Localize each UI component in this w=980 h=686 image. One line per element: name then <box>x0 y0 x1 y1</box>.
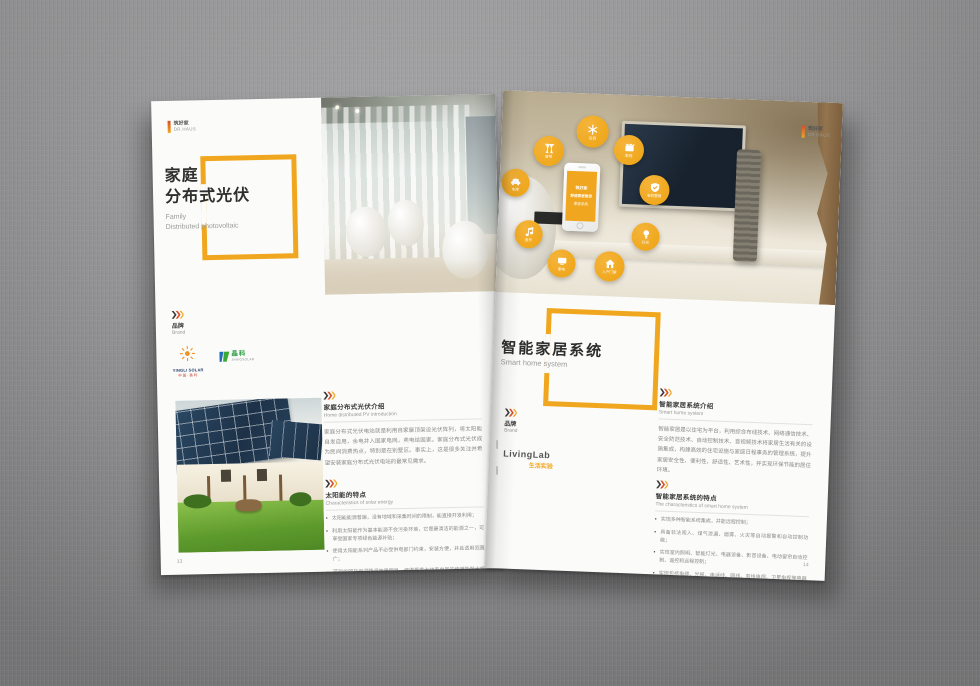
chevrons-icon <box>656 480 668 488</box>
garden-table <box>235 499 261 512</box>
tower-speaker <box>733 149 761 262</box>
title-line2: 分布式光伏 <box>165 187 250 206</box>
snowflake-glyph-icon <box>587 123 599 135</box>
icon-label: 安防警报 <box>647 194 662 198</box>
logo-bar-icon <box>802 126 805 138</box>
page-left: 筑好家 DR.HAUS 家庭 分布式光伏 Fami <box>151 94 505 575</box>
bullet-item: 太阳能能源普遍，没有地域和采集时间的限制，能直接开发利用； <box>326 512 484 523</box>
wall-panel <box>466 116 498 235</box>
headline-zh: 智能家居系统 <box>501 336 604 361</box>
phone-app-line1: 舒适家居智控 <box>570 193 592 199</box>
music-note-glyph-icon <box>523 226 534 237</box>
chevrons-icon <box>325 479 337 487</box>
chevrons-icon <box>172 311 184 319</box>
car-glyph-icon <box>510 174 522 186</box>
phone-app-line2: 家居系统 <box>574 201 589 207</box>
title-en-line1: Family <box>165 214 186 221</box>
livinglab-name: LivingLab <box>503 448 550 460</box>
brand-logos: YINGLI SOLAR 中国·英利 晶科 JINKOSOLAR <box>172 343 323 379</box>
floor <box>325 259 500 295</box>
chevrons-icon <box>323 391 335 399</box>
icon-label: 影视 <box>625 154 632 158</box>
brand-logo: 筑好家 DR.HAUS <box>168 120 197 133</box>
house-glyph-icon <box>604 258 615 269</box>
bullet-item: 实现室内照明、智能灯光、电器设备、影音设备、电动窗帘自动控制、遥控和远程控制； <box>653 550 807 571</box>
section-body: 智能家居是以住宅为平台，利用综合布线技术、网络通信技术、安全防范技术、自动控制技… <box>657 424 813 481</box>
chevrons-icon <box>660 388 672 396</box>
section-smart-home-features: 智能家居系统的特点 The characteristics of smart h… <box>652 480 810 581</box>
icon-label: 音乐 <box>525 238 532 242</box>
livinglab-sub: 生活实验 <box>529 460 633 473</box>
bullet-item: 具备非法闯入、煤气泄漏、烟雾、火灾等自动报警和自动控制功能； <box>654 529 808 550</box>
solar-house-photo <box>175 398 324 553</box>
shield-glyph-icon <box>649 182 660 193</box>
tv-glyph-icon <box>556 255 567 266</box>
section-title-en: Home distributed PV introduction <box>324 409 482 422</box>
icon-label: 车库 <box>512 187 519 191</box>
living-room-photo-left <box>321 94 499 295</box>
bullet-item: 使用太阳能系列产品不必受供电部门约束，安装方便，并且适用范围广； <box>327 546 485 565</box>
page-number-left: 13 <box>177 559 183 565</box>
jinko-sub: JINKOSOLAR <box>231 358 254 361</box>
smartphone: 筑好家 舒适家居智控 家居系统 <box>562 163 601 232</box>
page-right: 筑好家 舒适家居智控 家居系统 窗帘 空调 <box>485 90 843 581</box>
bullet-item: 实现多种智能系统集成，并能远程控制； <box>655 516 809 530</box>
porch-post <box>279 475 283 503</box>
section-title-en: Characteristics of solar energy <box>326 497 484 510</box>
section-body: 家庭分布式光伏电站就是利用自家屋顶架设光伏阵列，将太阳能自发自用，余电并入国家电… <box>324 424 483 468</box>
fabric-background: 筑好家 DR.HAUS 家庭 分布式光伏 Fami <box>0 0 980 686</box>
phone-screen: 筑好家 舒适家居智控 家居系统 <box>565 171 597 222</box>
title-en-line2: Distributed photovoltaic <box>166 223 239 232</box>
phone-app-brand: 筑好家 <box>575 185 587 191</box>
yingli-name: YINGLI SOLAR <box>173 367 204 373</box>
brand-section: 品牌 Brand YINGLI SOLAR <box>172 308 323 379</box>
tv-wall-photo <box>495 90 843 305</box>
yingli-logo: YINGLI SOLAR 中国·英利 <box>172 345 204 379</box>
brand-logo: 筑好家 DR.HAUS <box>802 126 831 139</box>
jinko-mark-icon <box>219 351 229 363</box>
house-window <box>221 470 231 482</box>
logo-text-en: DR.HAUS <box>174 126 196 132</box>
headline-en: Smart home system <box>501 357 568 369</box>
icon-label: 家电 <box>558 268 565 272</box>
logo-text-en: DR.HAUS <box>808 132 831 138</box>
phone-home-button <box>576 222 583 229</box>
phone-speaker <box>578 166 586 168</box>
curtain-glyph-icon <box>543 143 554 154</box>
bullet-item: 利用太阳能作为基本能源不会污染环境，它是最清洁的能源之一，可享受国家专项绿色能源… <box>326 525 484 544</box>
icon-label: 窗帘 <box>545 155 552 159</box>
livinglab-logo: LivingLab 生活实验 <box>503 443 634 473</box>
icon-label: 空调 <box>589 136 596 140</box>
staple-icon <box>496 466 498 475</box>
brochure-spread: 筑好家 DR.HAUS 家庭 分布式光伏 Fami <box>150 84 840 578</box>
title-line1: 家庭 <box>165 167 199 185</box>
tv-screen <box>619 121 746 212</box>
section-solar-features: 太阳能的特点 Characteristics of solar energy 太… <box>325 476 485 575</box>
page-number-right: 14 <box>803 562 809 568</box>
logo-bar-icon <box>168 121 171 133</box>
film-glyph-icon <box>623 142 634 153</box>
section-pv-introduction: 家庭分布式光伏介绍 Home distributed PV introducti… <box>323 388 483 468</box>
page-title-zh: 家庭 分布式光伏 <box>164 165 250 208</box>
brand-section: 品牌 Brand LivingLab 生活实验 <box>503 408 635 473</box>
lounge-chair <box>345 206 386 257</box>
chevrons-icon <box>505 408 517 416</box>
section-smart-home-introduction: 智能家居系统介绍 Smart home system 智能家居是以住宅为平台，利… <box>657 388 814 481</box>
house-window <box>257 469 267 481</box>
solar-panels-right <box>269 420 324 460</box>
yingli-sub: 中国·英利 <box>173 373 204 379</box>
sun-icon <box>180 345 196 361</box>
lounge-chair <box>387 200 424 247</box>
bulb-glyph-icon <box>640 229 651 240</box>
icon-label: 灯光 <box>642 241 649 245</box>
jinko-logo: 晶科 JINKOSOLAR <box>219 350 254 363</box>
icon-label: 入户门禁 <box>602 270 617 274</box>
page-title-en: Family Distributed photovoltaic <box>165 211 238 233</box>
staple-icon <box>496 440 498 449</box>
